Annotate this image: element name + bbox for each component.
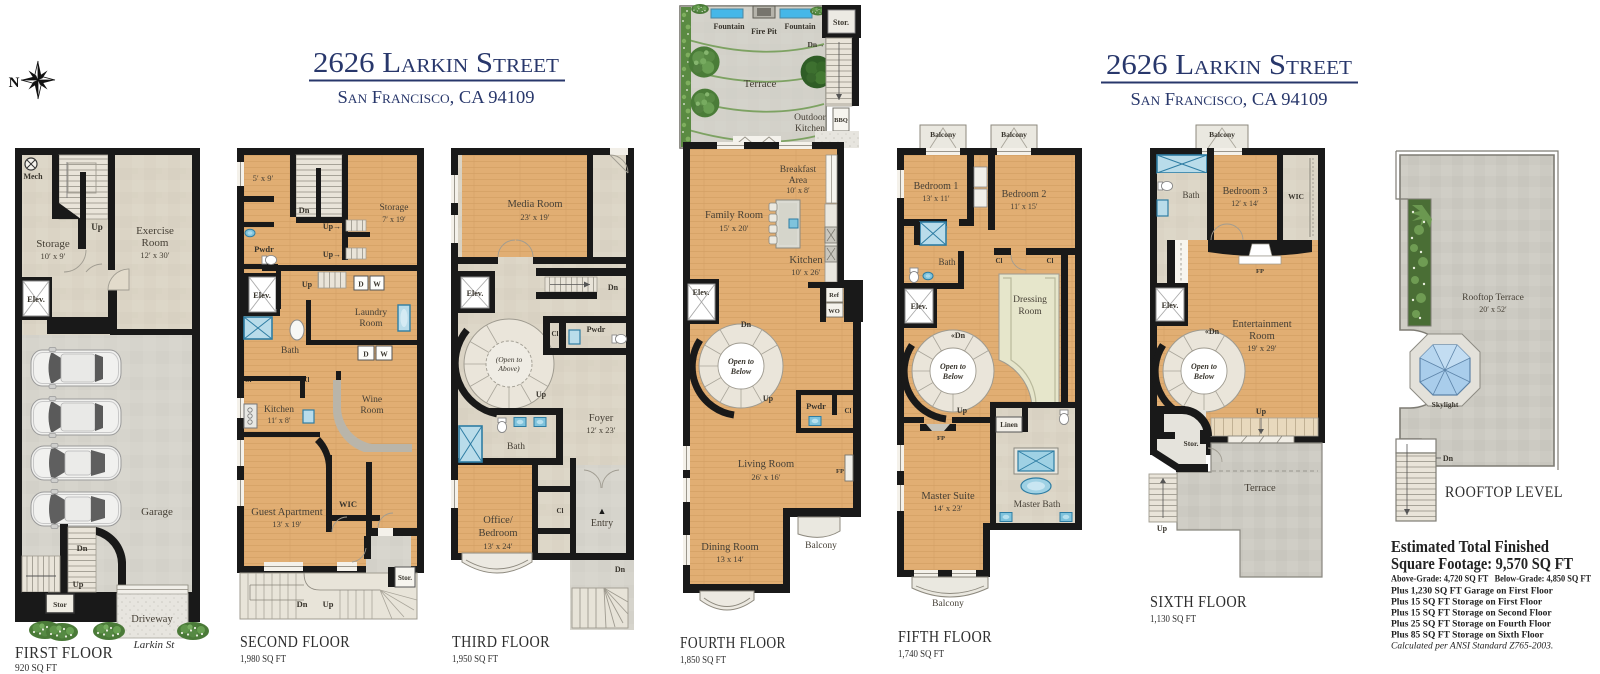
svg-text:Driveway: Driveway <box>131 614 173 625</box>
svg-text:▲: ▲ <box>598 506 607 516</box>
svg-text:Pwdr: Pwdr <box>254 244 274 254</box>
svg-text:Stor.: Stor. <box>398 574 412 582</box>
svg-text:Entry: Entry <box>591 518 613 529</box>
svg-text:Skylight: Skylight <box>1432 400 1459 409</box>
svg-text:Bath: Bath <box>1183 190 1200 200</box>
svg-text:Pwdr: Pwdr <box>587 325 606 334</box>
svg-text:Terrace: Terrace <box>1244 483 1276 494</box>
svg-text:Square Footage: 9,570 SQ FT: Square Footage: 9,570 SQ FT <box>1391 554 1574 573</box>
svg-text:1,980 SQ FT: 1,980 SQ FT <box>240 654 286 665</box>
svg-text:13′ x 11′: 13′ x 11′ <box>922 194 949 203</box>
svg-text:Media Room: Media Room <box>507 199 562 210</box>
svg-text:Office/: Office/ <box>483 515 513 526</box>
svg-text:Plus 85 SQ FT Storage on Sixth: Plus 85 SQ FT Storage on Sixth Floor <box>1391 631 1544 641</box>
svg-text:FP: FP <box>937 435 945 442</box>
svg-text:Dn: Dn <box>1443 454 1454 463</box>
svg-text:W: W <box>373 280 381 289</box>
svg-text:Bath: Bath <box>507 442 525 452</box>
svg-text:Below: Below <box>1193 372 1215 381</box>
svg-text:BBQ: BBQ <box>834 117 848 124</box>
svg-text:Ref: Ref <box>829 292 840 299</box>
svg-text:Up→: Up→ <box>323 250 341 259</box>
svg-text:10′ x 8′: 10′ x 8′ <box>786 186 810 195</box>
svg-text:FP: FP <box>1256 268 1264 275</box>
svg-text:Balcony: Balcony <box>1209 130 1235 139</box>
svg-text:10′ x 26′: 10′ x 26′ <box>791 267 820 277</box>
svg-text:2626 Larkin Street: 2626 Larkin Street <box>1106 49 1352 81</box>
svg-text:Up: Up <box>536 390 547 399</box>
svg-text:Below: Below <box>942 372 964 381</box>
svg-text:Master Bath: Master Bath <box>1014 500 1061 510</box>
svg-text:Cl: Cl <box>557 507 564 515</box>
svg-text:Exercise: Exercise <box>136 225 174 237</box>
svg-text:WIC: WIC <box>1288 192 1304 201</box>
svg-text:W: W <box>380 350 388 359</box>
svg-text:Dn: Dn <box>608 283 619 292</box>
svg-text:Balcony: Balcony <box>1001 130 1027 139</box>
svg-text:Dn: Dn <box>741 320 752 329</box>
svg-text:Plus 25 SQ FT Storage on Fourt: Plus 25 SQ FT Storage on Fourth Floor <box>1391 620 1552 630</box>
svg-text:Up: Up <box>302 280 313 289</box>
svg-text:Bath: Bath <box>939 257 956 267</box>
svg-text:19′ x 29′: 19′ x 29′ <box>1247 343 1276 353</box>
svg-text:Family Room: Family Room <box>705 210 763 221</box>
svg-text:Outdoor: Outdoor <box>794 113 827 123</box>
svg-text:26′ x 16′: 26′ x 16′ <box>751 472 780 482</box>
svg-text:Kitchen: Kitchen <box>264 405 294 415</box>
svg-text:FIFTH FLOOR: FIFTH FLOOR <box>898 627 992 646</box>
svg-text:11′ x 15′: 11′ x 15′ <box>1010 202 1037 211</box>
svg-text:Room: Room <box>360 406 384 416</box>
svg-text:Up→: Up→ <box>323 222 341 231</box>
svg-text:Room: Room <box>1018 307 1042 317</box>
svg-text:Up: Up <box>91 222 103 232</box>
svg-text:Up: Up <box>1256 407 1267 416</box>
svg-text:San Francisco, CA 94109: San Francisco, CA 94109 <box>338 87 535 107</box>
svg-text:Cl: Cl <box>1047 257 1054 265</box>
svg-text:«Dn: «Dn <box>1205 327 1220 336</box>
svg-text:7′ x 19′: 7′ x 19′ <box>382 215 406 224</box>
svg-text:Above): Above) <box>497 364 520 373</box>
svg-text:Storage: Storage <box>36 238 70 250</box>
svg-text:Terrace: Terrace <box>744 78 777 90</box>
svg-text:Foyer: Foyer <box>589 413 614 424</box>
svg-text:11′ x 8′: 11′ x 8′ <box>267 416 290 425</box>
svg-text:Area: Area <box>789 176 808 186</box>
svg-text:Fire Pit: Fire Pit <box>751 27 777 36</box>
svg-text:Elev.: Elev. <box>467 289 484 298</box>
svg-text:20′ x 52′: 20′ x 52′ <box>1479 305 1507 314</box>
svg-text:Up: Up <box>763 394 774 403</box>
svg-text:Elev.: Elev. <box>253 290 271 300</box>
svg-text:14′ x 23′: 14′ x 23′ <box>933 503 962 513</box>
svg-text:(Open to: (Open to <box>496 355 523 364</box>
svg-text:Dn→: Dn→ <box>807 40 824 49</box>
svg-text:2626 Larkin Street: 2626 Larkin Street <box>313 47 559 79</box>
svg-text:Elev.: Elev. <box>1162 301 1179 310</box>
svg-text:5′ x 9′: 5′ x 9′ <box>253 173 274 183</box>
svg-text:Guest Apartment: Guest Apartment <box>251 507 323 518</box>
svg-text:Below: Below <box>730 367 752 376</box>
svg-text:Cl: Cl <box>996 257 1003 265</box>
svg-text:San Francisco, CA 94109: San Francisco, CA 94109 <box>1131 89 1328 109</box>
svg-text:Linen: Linen <box>1000 421 1018 429</box>
svg-text:Bedroom 3: Bedroom 3 <box>1223 186 1268 197</box>
svg-text:Wine: Wine <box>362 395 382 405</box>
svg-text:Cl: Cl <box>552 330 559 338</box>
svg-text:Balcony: Balcony <box>930 130 956 139</box>
svg-text:WIC: WIC <box>339 499 357 509</box>
svg-text:FP: FP <box>836 468 844 475</box>
svg-text:1,950 SQ FT: 1,950 SQ FT <box>452 654 498 665</box>
svg-text:1,850 SQ FT: 1,850 SQ FT <box>680 655 726 666</box>
svg-text:SECOND FLOOR: SECOND FLOOR <box>240 632 350 651</box>
svg-text:Above-Grade: 4,720 SQ FT Bel: Above-Grade: 4,720 SQ FT Below-Grade: 4,… <box>1391 575 1592 585</box>
svg-text:Dn: Dn <box>77 543 88 553</box>
svg-text:Open to: Open to <box>1191 362 1217 371</box>
svg-text:15′ x 20′: 15′ x 20′ <box>719 223 748 233</box>
svg-text:Room: Room <box>1249 331 1275 342</box>
svg-text:Dn: Dn <box>615 565 626 574</box>
svg-text:920 SQ FT: 920 SQ FT <box>15 663 57 674</box>
svg-text:Up: Up <box>323 599 334 609</box>
svg-text:Master Suite: Master Suite <box>921 491 975 502</box>
svg-text:Dressing: Dressing <box>1013 295 1047 305</box>
svg-text:Fountain: Fountain <box>713 22 745 31</box>
svg-text:1,130 SQ FT: 1,130 SQ FT <box>1150 614 1196 625</box>
svg-text:Room: Room <box>359 319 383 329</box>
svg-text:Breakfast: Breakfast <box>780 164 817 175</box>
svg-text:Stor: Stor <box>53 600 67 609</box>
svg-text:Balcony: Balcony <box>805 541 837 551</box>
svg-text:Up: Up <box>957 406 968 415</box>
svg-text:Bedroom: Bedroom <box>478 528 517 539</box>
svg-text:10′ x 9′: 10′ x 9′ <box>41 251 66 261</box>
svg-text:Bedroom 2: Bedroom 2 <box>1002 189 1047 200</box>
svg-text:23′ x 19′: 23′ x 19′ <box>520 212 549 222</box>
svg-text:D: D <box>358 280 364 289</box>
svg-text:1,740 SQ FT: 1,740 SQ FT <box>898 649 944 660</box>
svg-text:Fountain: Fountain <box>784 22 816 31</box>
svg-text:Up: Up <box>73 579 84 589</box>
svg-text:Larkin St: Larkin St <box>133 639 176 651</box>
svg-text:Rooftop Terrace: Rooftop Terrace <box>1462 292 1524 303</box>
svg-text:Pwdr: Pwdr <box>806 401 826 411</box>
svg-text:13 x 14′: 13 x 14′ <box>716 554 744 564</box>
svg-text:Mech: Mech <box>23 172 43 181</box>
svg-text:Plus 1,230 SQ FT Garage on Fir: Plus 1,230 SQ FT Garage on First Floor <box>1391 587 1554 597</box>
svg-text:Calculated per ANSI Standard Z: Calculated per ANSI Standard Z765-2003. <box>1391 642 1553 652</box>
svg-text:Laundry: Laundry <box>355 308 387 318</box>
svg-text:Plus 15 SQ FT Storage on Secon: Plus 15 SQ FT Storage on Second Floor <box>1391 609 1552 619</box>
svg-text:Living Room: Living Room <box>738 459 794 470</box>
svg-text:Room: Room <box>142 237 169 249</box>
svg-text:«Dn: «Dn <box>951 331 966 340</box>
svg-text:Open to: Open to <box>940 362 966 371</box>
svg-text:13′ x 24′: 13′ x 24′ <box>483 541 512 551</box>
svg-text:D: D <box>363 350 369 359</box>
svg-text:Dn: Dn <box>297 599 308 609</box>
svg-text:Stor.: Stor. <box>833 18 849 27</box>
svg-text:Plus 15 SQ FT Storage on First: Plus 15 SQ FT Storage on First Floor <box>1391 598 1543 608</box>
svg-text:13′ x 19′: 13′ x 19′ <box>272 519 301 529</box>
svg-text:12′ x 30′: 12′ x 30′ <box>140 250 169 260</box>
svg-text:12′ x 23′: 12′ x 23′ <box>586 425 615 435</box>
svg-text:Garage: Garage <box>141 506 173 518</box>
svg-text:N: N <box>9 75 20 91</box>
svg-text:Storage: Storage <box>379 203 408 213</box>
svg-text:FIRST FLOOR: FIRST FLOOR <box>15 643 113 662</box>
svg-text:Elev.: Elev. <box>693 288 710 297</box>
svg-text:Cl: Cl <box>845 407 852 415</box>
svg-text:THIRD FLOOR: THIRD FLOOR <box>452 632 550 651</box>
svg-text:WO: WO <box>828 308 840 315</box>
svg-text:Open to: Open to <box>728 357 754 366</box>
svg-text:Entertainment: Entertainment <box>1232 319 1292 330</box>
svg-text:Dining Room: Dining Room <box>701 542 758 553</box>
svg-text:Up: Up <box>1157 524 1168 533</box>
svg-text:Stor.: Stor. <box>1184 439 1199 448</box>
svg-text:Bath: Bath <box>281 346 299 356</box>
svg-text:Bedroom 1: Bedroom 1 <box>914 181 959 192</box>
svg-text:Kitchen: Kitchen <box>789 255 823 266</box>
svg-text:ROOFTOP LEVEL: ROOFTOP LEVEL <box>1445 484 1563 501</box>
svg-text:SIXTH FLOOR: SIXTH FLOOR <box>1150 592 1247 611</box>
svg-text:Elev.: Elev. <box>27 294 45 304</box>
svg-text:12′ x 14′: 12′ x 14′ <box>1231 199 1259 208</box>
svg-text:FOURTH FLOOR: FOURTH FLOOR <box>680 633 786 652</box>
svg-text:Dn: Dn <box>299 205 310 215</box>
svg-text:Balcony: Balcony <box>932 599 964 609</box>
svg-text:Elev.: Elev. <box>911 302 928 311</box>
